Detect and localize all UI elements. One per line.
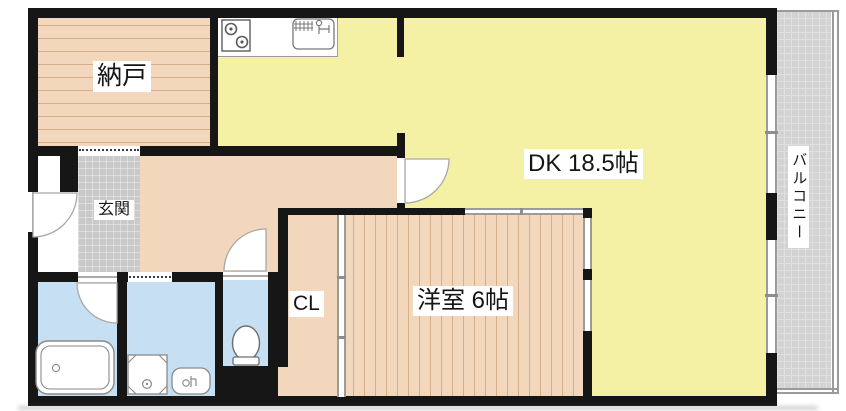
bathroom-door-arc-icon bbox=[77, 283, 117, 323]
room-label-dk: DK 18.5帖 bbox=[524, 149, 643, 179]
hall-dk-door-arc-icon bbox=[405, 159, 449, 203]
sink-icon bbox=[293, 19, 334, 49]
stove-icon bbox=[222, 20, 250, 51]
entrance-door-arc-icon bbox=[33, 193, 77, 237]
room-label-western: 洋室 6帖 bbox=[413, 286, 513, 316]
drop-shadow bbox=[18, 406, 818, 410]
washbasin-icon bbox=[172, 368, 210, 394]
toilet-door-arc-icon bbox=[224, 229, 266, 271]
toilet-icon bbox=[233, 326, 260, 365]
room-label-nando: 納戸 bbox=[93, 61, 151, 92]
washing-machine-pan-icon bbox=[128, 355, 167, 394]
floor-plan: 納戸 玄関 DK 18.5帖 洋室 6帖 CL バルコニー bbox=[0, 0, 846, 411]
bathtub-icon bbox=[36, 341, 114, 394]
room-label-balcony: バルコニー bbox=[788, 146, 809, 248]
room-label-closet: CL bbox=[289, 291, 324, 317]
room-label-genkan: 玄関 bbox=[94, 200, 134, 220]
